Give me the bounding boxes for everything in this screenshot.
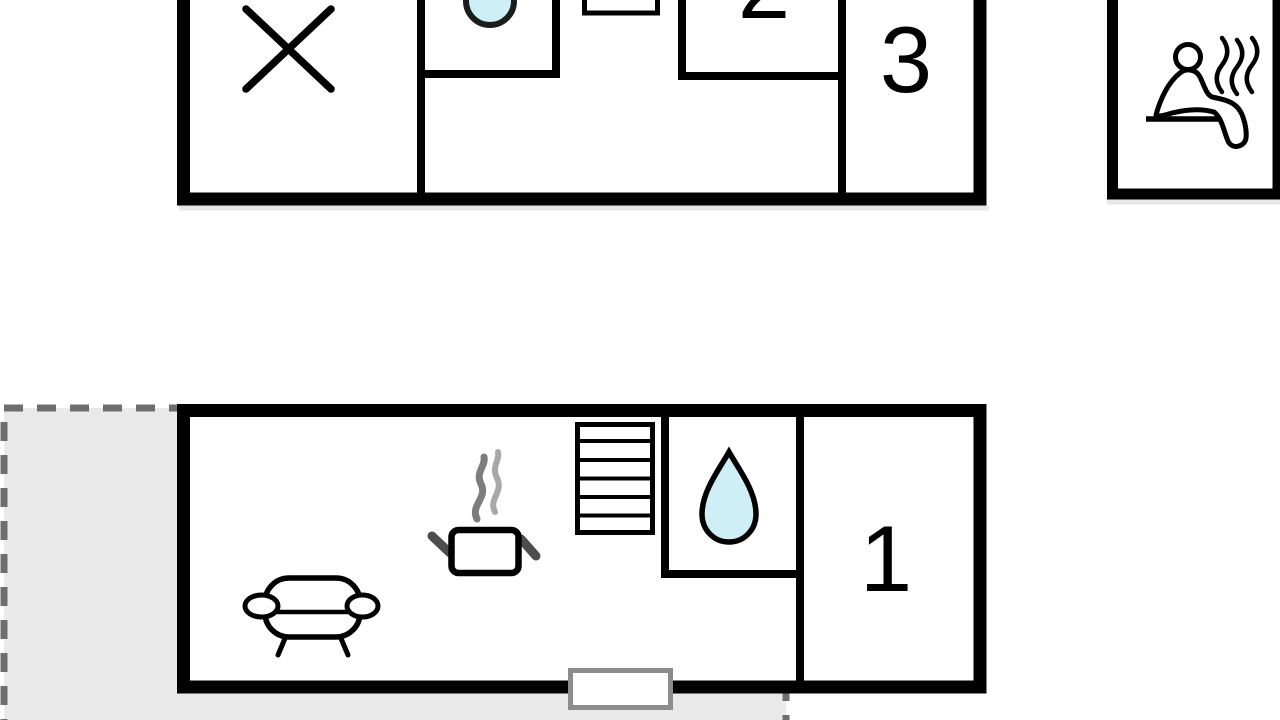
- upper-floor-outer-wall: [184, 0, 981, 199]
- sauna-cabin: [1107, 0, 1280, 205]
- wall-xroom-right: [417, 0, 425, 193]
- wall-room3-left: [838, 0, 846, 193]
- sofa-armrest-right: [347, 595, 378, 617]
- sauna-person-head: [1176, 45, 1201, 70]
- wall-room1-left: [796, 417, 804, 684]
- window-marker: [585, 0, 658, 13]
- wall-upper-bath-right: [552, 0, 560, 78]
- ground-floor-plan: 1: [4, 408, 980, 720]
- upper-floor-shadow: [179, 206, 989, 211]
- sofa-armrest-left: [245, 595, 278, 617]
- wall-room2-bottom: [678, 72, 846, 80]
- room-label-3: 3: [880, 7, 932, 112]
- wall-room2-left: [678, 0, 686, 80]
- floor-plan-svg: 2 3: [0, 0, 1280, 720]
- wall-bath-bottom: [661, 570, 804, 578]
- stairs-icon: [578, 425, 653, 533]
- entrance-door-marker: [571, 671, 671, 708]
- pot-body: [452, 530, 519, 573]
- wall-upper-bath-bottom: [417, 70, 560, 78]
- room-label-2: 2: [738, 0, 790, 38]
- floor-plan-canvas: 2 3: [0, 0, 1280, 720]
- wall-bath-left: [661, 417, 669, 578]
- room-label-1: 1: [860, 506, 912, 611]
- upper-floor-plan: 2 3: [179, 0, 989, 211]
- washbasin-icon: [466, 0, 514, 25]
- sauna-shadow: [1107, 200, 1280, 205]
